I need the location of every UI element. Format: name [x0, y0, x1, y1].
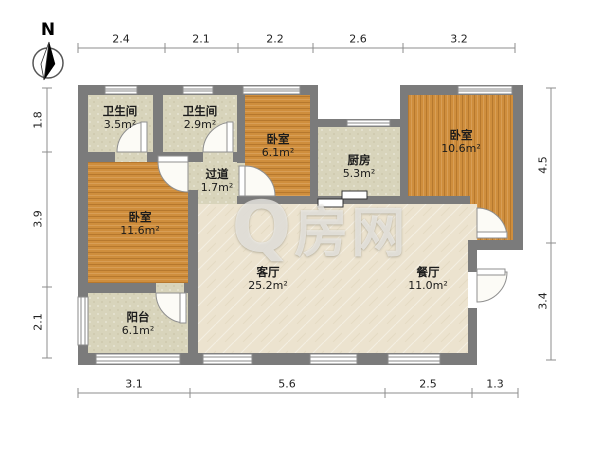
wall-bedroom-top-left — [237, 85, 245, 163]
door-leaf — [158, 156, 188, 162]
dim-bottom-1: 3.1 — [125, 378, 143, 391]
dim-left-1: 1.8 — [32, 111, 45, 129]
window — [310, 354, 357, 364]
wall-bedroom-left-right — [188, 190, 198, 365]
room-label-balcony: 阳台 6.1m² — [122, 311, 155, 337]
floor-doorway — [115, 152, 147, 162]
room-label-bathroom-1: 卫生间 3.5m² — [103, 105, 138, 131]
watermark-q: Q — [232, 186, 295, 268]
room-label-living-room: 客厅 25.2m² — [248, 266, 288, 292]
room-label-bedroom-right: 卧室 10.6m² — [441, 129, 481, 155]
room-label-bedroom-left: 卧室 11.6m² — [120, 211, 160, 237]
window — [388, 354, 440, 364]
dim-bottom-2: 5.6 — [278, 378, 296, 391]
window — [347, 120, 390, 126]
floorplan-page: N 卫生间 3.5m² 卫生间 2.9m² 卧室 6.1m² 厨房 5.3m² … — [0, 0, 600, 450]
dim-left-3: 2.1 — [32, 313, 45, 331]
dim-right-2: 3.4 — [537, 292, 550, 310]
dim-top-3: 2.2 — [266, 33, 284, 46]
room-label-kitchen: 厨房 5.3m² — [343, 154, 376, 180]
window — [183, 86, 213, 94]
dim-top-4: 2.6 — [349, 33, 367, 46]
wall-dining-right-upper — [468, 240, 477, 272]
room-label-dining-room: 餐厅 11.0m² — [408, 266, 448, 292]
floor-doorway — [468, 204, 477, 240]
floor-doorway — [156, 283, 186, 293]
dim-right-1: 4.5 — [537, 156, 550, 174]
site-watermark: Q房网 — [232, 186, 409, 268]
room-label-hallway: 过道 1.7m² — [201, 168, 234, 194]
window — [96, 354, 180, 364]
dim-top-5: 3.2 — [450, 33, 468, 46]
room-label-bedroom-top: 卧室 6.1m² — [262, 133, 295, 159]
door-leaf — [180, 293, 186, 323]
door-leaf — [477, 269, 505, 275]
dim-left-2: 3.9 — [32, 210, 45, 228]
wall-bathroom-divider — [153, 95, 163, 152]
door-leaf — [141, 122, 147, 152]
dim-bottom-4: 1.3 — [486, 378, 504, 391]
dim-top-2: 2.1 — [192, 33, 210, 46]
watermark-text: 房网 — [294, 201, 408, 264]
window — [458, 86, 512, 94]
floor-doorway — [203, 152, 233, 162]
dim-bottom-3: 2.5 — [419, 378, 437, 391]
window — [105, 86, 137, 94]
north-compass-icon — [33, 42, 63, 80]
door-leaf — [227, 122, 233, 152]
wall-balcony-top — [184, 283, 198, 293]
wall-bathrooms-bottom — [88, 152, 115, 162]
door-arc-entry — [477, 272, 507, 302]
window — [78, 297, 88, 345]
north-label: N — [41, 20, 55, 40]
window — [243, 86, 300, 94]
window — [203, 354, 252, 364]
room-label-bathroom-2: 卫生间 2.9m² — [183, 105, 218, 131]
wall-right-upper — [513, 85, 523, 250]
floor-doorway — [188, 162, 198, 190]
dim-top-1: 2.4 — [112, 33, 130, 46]
door-leaf — [477, 232, 507, 238]
wall-balcony-top — [78, 283, 156, 293]
